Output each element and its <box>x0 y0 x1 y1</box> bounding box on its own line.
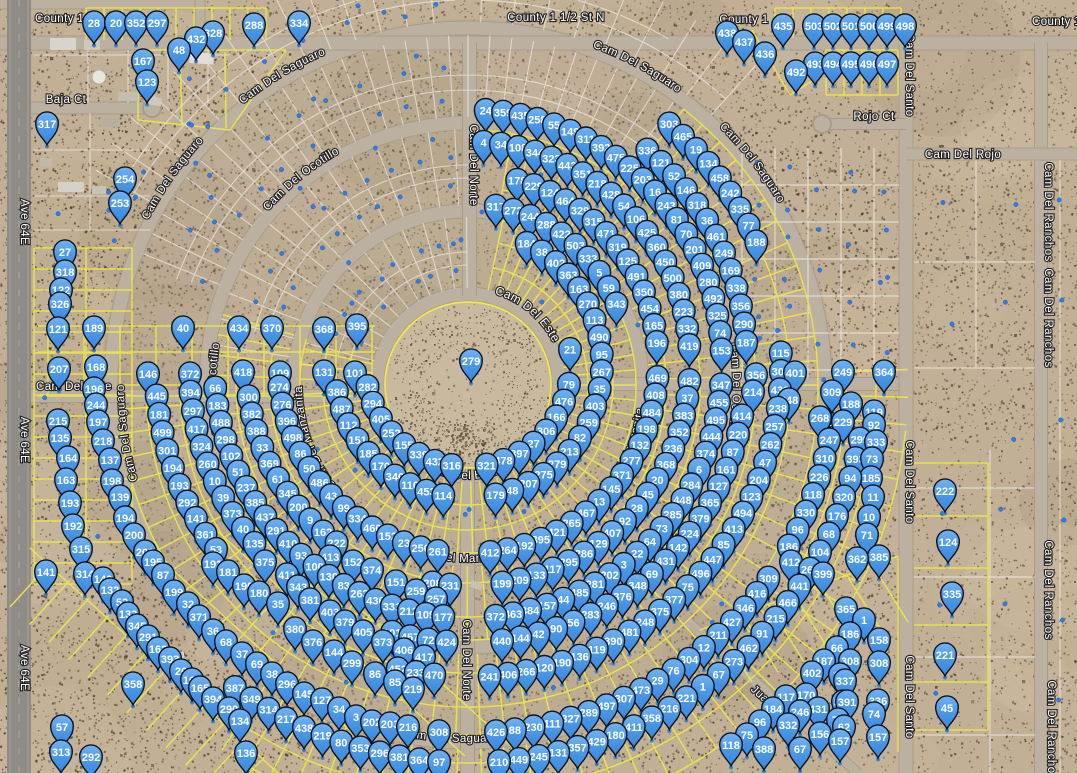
svg-text:40: 40 <box>177 323 189 335</box>
svg-text:199: 199 <box>493 578 511 590</box>
svg-text:76: 76 <box>667 666 679 678</box>
svg-text:Cam Del Norte: Cam Del Norte <box>460 619 472 700</box>
svg-text:111: 111 <box>544 718 561 730</box>
svg-text:497: 497 <box>878 59 896 71</box>
svg-text:24: 24 <box>480 106 493 118</box>
svg-text:353: 353 <box>351 743 369 755</box>
svg-text:11: 11 <box>867 492 879 504</box>
svg-text:337: 337 <box>836 676 854 688</box>
svg-text:424: 424 <box>438 637 457 649</box>
svg-text:216: 216 <box>399 722 417 734</box>
svg-text:313: 313 <box>52 747 70 759</box>
svg-text:440: 440 <box>493 636 511 648</box>
svg-text:343: 343 <box>607 299 625 311</box>
svg-text:23: 23 <box>398 538 410 550</box>
svg-text:29: 29 <box>651 676 663 688</box>
svg-text:391: 391 <box>838 697 856 709</box>
svg-text:364: 364 <box>410 755 429 767</box>
svg-text:412: 412 <box>481 548 499 560</box>
svg-text:394: 394 <box>181 387 200 399</box>
svg-text:388: 388 <box>755 744 773 756</box>
svg-text:436: 436 <box>756 49 774 61</box>
svg-text:Baja Ct: Baja Ct <box>46 94 87 106</box>
svg-text:372: 372 <box>181 369 199 381</box>
svg-text:327: 327 <box>561 713 579 725</box>
svg-text:Cam Del Ranchos: Cam Del Ranchos <box>1042 268 1054 367</box>
svg-text:3: 3 <box>353 712 359 724</box>
svg-text:207: 207 <box>50 364 68 376</box>
svg-text:168: 168 <box>87 362 105 374</box>
svg-text:Cam Del Ranchos: Cam Del Ranchos <box>1042 540 1054 639</box>
svg-text:164: 164 <box>59 453 78 465</box>
svg-text:247: 247 <box>820 435 838 447</box>
svg-text:153: 153 <box>712 345 730 357</box>
svg-text:253: 253 <box>111 198 129 210</box>
svg-text:499: 499 <box>153 428 171 440</box>
svg-text:67: 67 <box>713 669 725 681</box>
svg-text:438: 438 <box>295 723 313 735</box>
svg-text:249: 249 <box>834 367 852 379</box>
svg-text:375: 375 <box>256 557 274 569</box>
svg-text:176: 176 <box>828 511 846 523</box>
svg-text:County 1 1/2 St N: County 1 1/2 St N <box>507 12 605 24</box>
svg-text:219: 219 <box>404 684 422 696</box>
svg-text:28: 28 <box>88 18 100 30</box>
svg-text:Cam Del Ranchos: Cam Del Ranchos <box>1045 680 1057 773</box>
svg-text:34: 34 <box>333 704 346 716</box>
svg-text:321: 321 <box>477 460 495 472</box>
svg-text:180: 180 <box>606 730 624 742</box>
svg-text:426: 426 <box>487 727 505 739</box>
svg-text:135: 135 <box>51 433 69 445</box>
svg-text:42: 42 <box>532 629 544 641</box>
svg-text:338: 338 <box>727 283 745 295</box>
svg-text:299: 299 <box>343 658 361 670</box>
svg-text:503: 503 <box>805 21 823 33</box>
svg-text:189: 189 <box>85 323 103 335</box>
svg-text:241: 241 <box>480 671 498 683</box>
svg-text:167: 167 <box>134 56 152 68</box>
svg-text:498: 498 <box>896 21 914 33</box>
svg-text:418: 418 <box>234 367 252 379</box>
svg-text:10: 10 <box>863 512 875 524</box>
svg-text:268: 268 <box>811 413 829 425</box>
svg-text:335: 335 <box>943 589 961 601</box>
svg-text:290: 290 <box>735 319 753 331</box>
svg-text:68: 68 <box>823 529 835 541</box>
svg-text:279: 279 <box>462 356 480 368</box>
svg-text:429: 429 <box>588 737 606 749</box>
svg-text:114: 114 <box>434 491 453 503</box>
svg-text:412: 412 <box>782 557 800 569</box>
svg-text:296: 296 <box>371 748 389 760</box>
svg-text:368: 368 <box>315 324 333 336</box>
svg-text:Cam Del Santo: Cam Del Santo <box>903 440 915 523</box>
svg-text:157: 157 <box>869 732 887 744</box>
svg-text:County 1: County 1 <box>35 13 84 25</box>
svg-text:Rojo Ct: Rojo Ct <box>853 111 895 123</box>
svg-text:411: 411 <box>625 722 643 734</box>
svg-text:187: 187 <box>737 338 755 350</box>
svg-text:71: 71 <box>861 530 873 542</box>
svg-text:254: 254 <box>116 174 135 186</box>
svg-text:156: 156 <box>811 729 829 741</box>
svg-text:406: 406 <box>395 645 413 657</box>
svg-text:414: 414 <box>733 411 752 423</box>
svg-text:57: 57 <box>56 722 68 734</box>
svg-text:56: 56 <box>567 617 579 629</box>
svg-text:County 1: County 1 <box>1032 16 1077 28</box>
svg-text:151: 151 <box>387 577 405 589</box>
svg-text:210: 210 <box>490 757 508 769</box>
svg-text:131: 131 <box>315 367 333 379</box>
svg-text:131: 131 <box>549 748 567 760</box>
svg-text:94: 94 <box>844 473 857 485</box>
svg-text:4: 4 <box>480 138 487 150</box>
svg-text:399: 399 <box>814 569 832 581</box>
svg-text:230: 230 <box>524 722 542 734</box>
svg-text:370: 370 <box>263 323 281 335</box>
svg-text:163: 163 <box>57 475 75 487</box>
svg-text:3: 3 <box>621 560 627 572</box>
svg-text:219: 219 <box>313 731 331 743</box>
svg-text:221: 221 <box>936 650 954 662</box>
svg-text:437: 437 <box>735 37 753 49</box>
svg-text:385: 385 <box>870 552 888 564</box>
svg-text:21: 21 <box>564 345 576 357</box>
svg-text:73: 73 <box>866 454 878 466</box>
svg-text:Ave 64E: Ave 64E <box>18 417 30 463</box>
svg-text:35: 35 <box>272 599 284 611</box>
svg-text:88: 88 <box>509 725 521 737</box>
svg-text:310: 310 <box>816 454 834 466</box>
svg-text:Ave 64E: Ave 64E <box>18 199 30 245</box>
svg-text:238: 238 <box>769 403 787 415</box>
svg-text:123: 123 <box>138 77 156 89</box>
svg-text:308: 308 <box>870 658 888 670</box>
svg-text:222: 222 <box>936 486 954 498</box>
svg-text:157: 157 <box>831 736 849 748</box>
svg-text:229: 229 <box>834 417 852 429</box>
svg-text:218: 218 <box>94 436 112 448</box>
svg-text:373: 373 <box>374 637 392 649</box>
svg-text:Ave 64E: Ave 64E <box>18 645 30 691</box>
svg-text:435: 435 <box>774 21 792 33</box>
svg-text:177: 177 <box>434 612 452 624</box>
svg-text:379: 379 <box>336 617 354 629</box>
svg-text:297: 297 <box>184 406 202 418</box>
svg-text:332: 332 <box>779 720 797 732</box>
svg-text:141: 141 <box>37 567 55 579</box>
svg-text:362: 362 <box>848 554 866 566</box>
svg-text:320: 320 <box>835 492 853 504</box>
svg-text:317: 317 <box>38 119 56 131</box>
svg-text:1: 1 <box>700 682 706 694</box>
svg-text:181: 181 <box>150 410 168 422</box>
svg-text:34: 34 <box>495 139 508 151</box>
svg-text:134: 134 <box>231 716 250 728</box>
svg-text:449: 449 <box>510 755 528 767</box>
svg-text:380: 380 <box>286 624 304 636</box>
svg-text:445: 445 <box>148 391 166 403</box>
svg-text:68: 68 <box>220 637 232 649</box>
svg-text:197: 197 <box>89 417 107 429</box>
svg-text:1: 1 <box>861 615 867 627</box>
svg-text:196: 196 <box>648 338 666 350</box>
svg-text:91: 91 <box>756 628 768 640</box>
svg-text:434: 434 <box>230 323 249 335</box>
svg-text:292: 292 <box>82 752 100 764</box>
svg-text:20: 20 <box>110 18 122 30</box>
svg-text:192: 192 <box>64 521 82 533</box>
svg-text:27: 27 <box>59 247 71 259</box>
svg-text:395: 395 <box>348 321 366 333</box>
svg-text:308: 308 <box>430 727 448 739</box>
svg-text:364: 364 <box>875 367 894 379</box>
svg-text:115: 115 <box>772 348 790 360</box>
svg-text:257: 257 <box>766 422 784 434</box>
svg-text:470: 470 <box>425 670 443 682</box>
svg-text:44: 44 <box>557 594 570 606</box>
svg-text:352: 352 <box>127 18 145 30</box>
svg-text:309: 309 <box>823 387 841 399</box>
svg-text:85: 85 <box>389 677 401 689</box>
svg-text:86: 86 <box>369 669 381 681</box>
svg-text:356: 356 <box>732 301 750 313</box>
svg-text:97: 97 <box>433 757 445 769</box>
svg-text:372: 372 <box>487 612 505 624</box>
svg-text:188: 188 <box>842 399 860 411</box>
svg-text:214: 214 <box>744 387 763 399</box>
svg-text:297: 297 <box>148 18 166 30</box>
svg-text:124: 124 <box>939 537 958 549</box>
svg-text:Cam Del Santo: Cam Del Santo <box>903 655 915 738</box>
svg-text:318: 318 <box>56 267 74 279</box>
svg-text:146: 146 <box>139 369 157 381</box>
svg-text:45: 45 <box>941 703 953 715</box>
svg-text:374: 374 <box>363 565 382 577</box>
svg-text:261: 261 <box>429 547 447 559</box>
svg-text:193: 193 <box>61 498 79 510</box>
svg-text:Cam Del Rojo: Cam Del Rojo <box>925 149 1001 161</box>
svg-text:405: 405 <box>354 627 372 639</box>
svg-text:315: 315 <box>72 544 90 556</box>
svg-text:137: 137 <box>101 455 119 467</box>
svg-text:288: 288 <box>245 20 263 32</box>
svg-text:67: 67 <box>794 744 806 756</box>
svg-text:75: 75 <box>741 730 753 742</box>
svg-text:316: 316 <box>443 461 461 473</box>
svg-text:74: 74 <box>868 709 881 721</box>
svg-text:152: 152 <box>344 557 362 569</box>
svg-text:419: 419 <box>680 341 698 353</box>
svg-text:135: 135 <box>245 539 263 551</box>
svg-text:48: 48 <box>506 486 518 498</box>
svg-text:402: 402 <box>803 668 821 680</box>
svg-text:326: 326 <box>51 299 69 311</box>
svg-text:259: 259 <box>407 586 425 598</box>
svg-text:180: 180 <box>250 588 268 600</box>
svg-text:492: 492 <box>787 67 805 79</box>
svg-text:179: 179 <box>486 490 504 502</box>
svg-text:245: 245 <box>530 752 548 764</box>
svg-text:381: 381 <box>390 752 408 764</box>
svg-text:381: 381 <box>301 595 319 607</box>
svg-text:12: 12 <box>698 643 710 655</box>
svg-text:358: 358 <box>124 679 142 691</box>
svg-text:181: 181 <box>219 567 237 579</box>
svg-text:90: 90 <box>550 624 562 636</box>
svg-text:118: 118 <box>722 740 740 752</box>
svg-text:Cam Del Ranchos: Cam Del Ranchos <box>1042 162 1054 261</box>
svg-text:9: 9 <box>307 515 313 527</box>
svg-text:365: 365 <box>837 604 855 616</box>
svg-text:188: 188 <box>747 237 765 249</box>
svg-text:48: 48 <box>173 45 185 57</box>
svg-text:144: 144 <box>511 633 530 645</box>
svg-text:185: 185 <box>862 473 880 485</box>
svg-text:334: 334 <box>290 18 309 30</box>
svg-text:357: 357 <box>568 743 586 755</box>
svg-text:376: 376 <box>304 637 322 649</box>
svg-text:158: 158 <box>870 635 888 647</box>
svg-text:87: 87 <box>157 570 169 582</box>
svg-text:139: 139 <box>111 492 129 504</box>
svg-text:121: 121 <box>49 324 67 336</box>
svg-text:401: 401 <box>786 368 804 380</box>
svg-text:80: 80 <box>335 737 347 749</box>
svg-text:136: 136 <box>237 748 255 760</box>
